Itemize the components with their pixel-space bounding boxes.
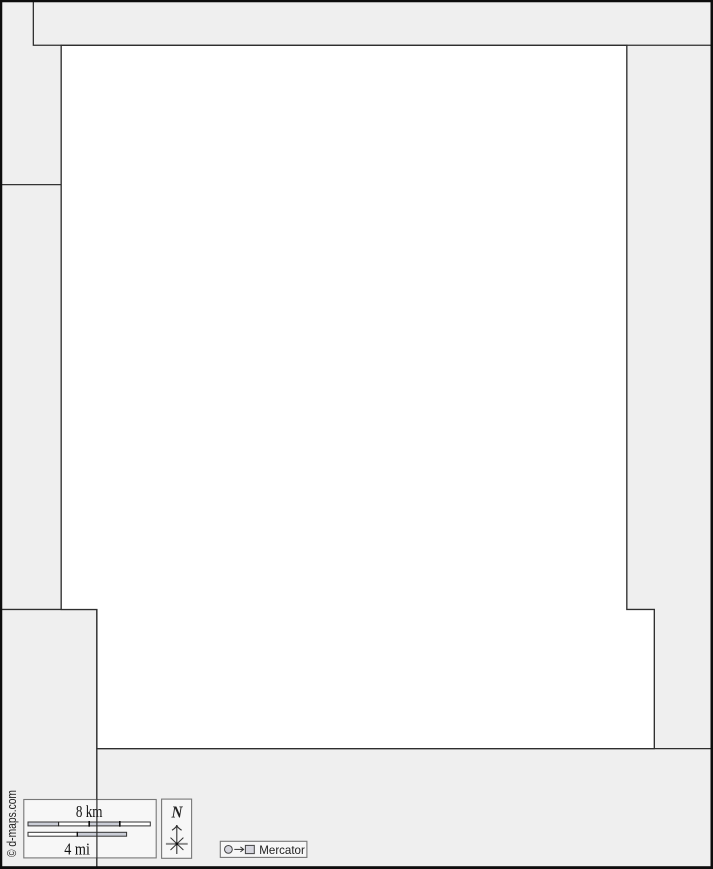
svg-text:© d-maps.com: © d-maps.com bbox=[5, 790, 19, 857]
svg-text:4 mi: 4 mi bbox=[64, 839, 90, 858]
svg-text:N: N bbox=[171, 802, 184, 821]
svg-text:Mercator: Mercator bbox=[259, 843, 305, 857]
svg-text:8 km: 8 km bbox=[76, 802, 103, 821]
